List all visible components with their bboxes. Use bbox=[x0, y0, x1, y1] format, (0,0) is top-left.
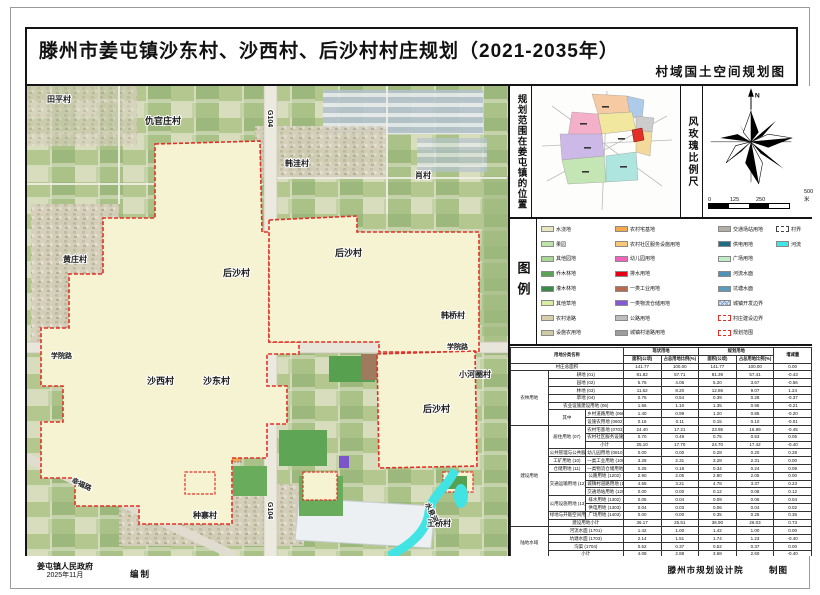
table-cell: 0.00 bbox=[623, 449, 661, 457]
legend-swatch bbox=[541, 271, 554, 277]
legend-swatch bbox=[541, 330, 554, 336]
table-cell: 0.11 bbox=[661, 418, 699, 426]
legend-label: 广场用地 bbox=[733, 255, 753, 262]
table-cell: 0.00 bbox=[623, 511, 661, 519]
credit-left-role: 编制 bbox=[130, 568, 151, 580]
legend-item: 乔木林地 bbox=[541, 266, 613, 281]
table-cell: 0.28 bbox=[699, 449, 737, 457]
table-cell: 0.04 bbox=[774, 496, 812, 504]
legend-label: 村界 bbox=[791, 226, 801, 233]
table-cell: 1.51 bbox=[661, 535, 699, 543]
map-label: 韩洼村 bbox=[285, 158, 309, 168]
table-cell: 公用设施用地 (13) bbox=[548, 496, 586, 512]
legend-item: 公路用地 bbox=[615, 311, 716, 326]
table-cell: 24.70 bbox=[699, 441, 737, 449]
table-cell: 3.21 bbox=[661, 480, 699, 488]
table-cell: 0.00 bbox=[661, 488, 699, 496]
table-cell: 农业设施建设用地 (06) bbox=[548, 402, 623, 410]
legend-item: 其他草地 bbox=[541, 296, 613, 311]
table-cell: 0.54 bbox=[661, 394, 699, 402]
legend-swatch bbox=[615, 226, 628, 232]
legend-grid: 水浇地果园其他园地乔木林地灌木林地其他草地农村道路设施农用地农村宅基地农村社区服… bbox=[537, 219, 812, 344]
table-cell: -0.20 bbox=[774, 410, 812, 418]
table-cell: 0.00 bbox=[661, 449, 699, 457]
map-label: 后沙村 bbox=[223, 267, 250, 278]
legend-swatch bbox=[615, 300, 628, 306]
credit-left-org: 姜屯镇人民政府 bbox=[37, 562, 93, 572]
legend-label: 河流 bbox=[791, 241, 801, 248]
table-cell: 0.09 bbox=[699, 496, 737, 504]
legend-label: 农村宅基地 bbox=[630, 226, 655, 233]
table-cell: 0.37 bbox=[661, 542, 699, 550]
table-cell: 0.04 bbox=[661, 496, 699, 504]
table-cell: 0.02 bbox=[774, 503, 812, 511]
table-cell: 0.06 bbox=[699, 503, 737, 511]
table-cell: 4.08 bbox=[623, 550, 661, 556]
legend-swatch bbox=[541, 300, 554, 306]
legend-swatch bbox=[541, 286, 554, 292]
table-cell: 0.75 bbox=[699, 433, 737, 441]
legend-item: 村界 bbox=[776, 222, 810, 237]
location-strip: 规划范围在姜屯镇的位置 bbox=[510, 86, 812, 219]
table-cell: 1.35 bbox=[699, 402, 737, 410]
table-cell: 幼儿园用地 (0810) bbox=[586, 449, 624, 457]
table-cell: 0.06 bbox=[736, 496, 774, 504]
table-cell: 0.53 bbox=[736, 433, 774, 441]
credit-right-role: 制图 bbox=[769, 565, 788, 575]
table-cell: 0.05 bbox=[623, 496, 661, 504]
table-header-cell: 增减量 bbox=[774, 348, 812, 364]
table-cell: -0.37 bbox=[774, 394, 812, 402]
table-cell: 1.56 bbox=[623, 402, 661, 410]
table-header-cell: 占总用地比例(%) bbox=[661, 355, 699, 363]
legend-label: 规划范围 bbox=[733, 329, 753, 336]
legend-item: 坑塘水面 bbox=[718, 281, 774, 296]
legend-swatch bbox=[718, 256, 731, 262]
right-panel: 规划范围在姜屯镇的位置 bbox=[508, 86, 812, 556]
town-location-svg bbox=[532, 86, 680, 215]
table-cell: 绿地与开敞空间用地 (14) bbox=[548, 511, 586, 519]
legend-item: 一类物流仓储用地 bbox=[615, 296, 716, 311]
map-label: 仇官庄村 bbox=[145, 115, 181, 126]
legend-swatch bbox=[615, 271, 628, 277]
legend-item: 其他园地 bbox=[541, 252, 613, 267]
table-cell: 草地 (04) bbox=[548, 394, 623, 402]
table-cell: 0.95 bbox=[736, 402, 774, 410]
table-cell: 0.35 bbox=[699, 511, 737, 519]
table-cell: 0.15 bbox=[699, 418, 737, 426]
legend-item: 灌木林地 bbox=[541, 281, 613, 296]
table-cell: 0.08 bbox=[736, 488, 774, 496]
legend-label: 排水用地 bbox=[630, 270, 650, 277]
table-cell: 城镇村道路用地 (1207) bbox=[586, 480, 624, 488]
credit-left-date: 2025年11月 bbox=[37, 572, 93, 581]
table-cell: 仓储用地 (11) bbox=[548, 464, 586, 472]
map-label: 沙西村 bbox=[147, 375, 174, 386]
legend-label: 一类工业用地 bbox=[630, 285, 660, 292]
table-cell: 0.00 bbox=[661, 511, 699, 519]
legend-swatch bbox=[718, 286, 731, 292]
table-cell: 0.70 bbox=[623, 433, 661, 441]
table-header-cell: 占总用地比例(%) bbox=[736, 355, 774, 363]
legend-swatch bbox=[718, 330, 731, 336]
legend-label: 河流水面 bbox=[733, 270, 753, 277]
map-label: 小河圈村 bbox=[458, 369, 491, 379]
windrose-cell: N bbox=[703, 86, 812, 217]
landuse-table-head: 用地分类名称现状用地规划用地增减量面积(公顷)占总用地比例(%)面积(公顷)占总… bbox=[511, 348, 812, 364]
table-cell: -0.40 bbox=[774, 535, 812, 543]
table-cell: 0.00 bbox=[774, 472, 812, 480]
table-cell: 1.23 bbox=[736, 535, 774, 543]
table-cell: 0.18 bbox=[661, 464, 699, 472]
legend-label: 城镇开发边界 bbox=[733, 300, 763, 307]
wind-rose: N bbox=[703, 86, 799, 190]
table-cell: 4.78 bbox=[699, 480, 737, 488]
table-cell: 12.86 bbox=[699, 386, 737, 394]
map-label: G104 bbox=[266, 502, 273, 519]
table-cell: 0.05 bbox=[774, 433, 812, 441]
table-cell: 25.51 bbox=[661, 519, 699, 527]
table-cell: 0.09 bbox=[774, 464, 812, 472]
table-cell: 工矿用地 (10) bbox=[548, 457, 586, 465]
table-cell: 25.10 bbox=[623, 441, 661, 449]
table-cell: 1.40 bbox=[623, 410, 661, 418]
table-cell: 0.28 bbox=[736, 394, 774, 402]
table-cell: 0.25 bbox=[623, 464, 661, 472]
legend-item: 果园 bbox=[541, 237, 613, 252]
map-label: 后沙村 bbox=[423, 403, 450, 414]
table-cell: 3.67 bbox=[736, 379, 774, 387]
table-cell: 排水用地 (1302) bbox=[586, 496, 624, 504]
table-cell: 2.60 bbox=[736, 550, 774, 556]
legend-swatch bbox=[718, 226, 731, 232]
table-cell: 0.04 bbox=[736, 503, 774, 511]
table-cell: 河流水面 (1701) bbox=[548, 527, 623, 535]
map-label: 黄庄村 bbox=[63, 254, 87, 264]
table-cell: 0.12 bbox=[699, 488, 737, 496]
table-cell: 建设用地 bbox=[511, 425, 549, 526]
table-cell: 居住用地 (07) bbox=[548, 425, 586, 448]
table-cell: 1.20 bbox=[699, 410, 737, 418]
table-cell: 0.00 bbox=[774, 527, 812, 535]
legend-swatch bbox=[615, 286, 628, 292]
credit-right: 滕州市规划设计院 制图 bbox=[668, 564, 788, 576]
table-cell: -0.43 bbox=[774, 371, 812, 379]
table-cell: 2.90 bbox=[699, 472, 737, 480]
legend-item: 农村道路 bbox=[541, 311, 613, 326]
table-cell: 林地 (03) bbox=[548, 386, 623, 394]
legend-swatch bbox=[718, 300, 731, 306]
table-cell: 81.39 bbox=[699, 371, 737, 379]
village-plan-map: 田平村仇官庄村韩洼村肖村黄庄村后沙村后沙村后沙村沙西村沙东村小河圈村韩桥村学院路… bbox=[27, 86, 508, 556]
map-frame: 滕州市姜屯镇沙东村、沙西村、后沙村村庄规划（2021-2035年） 村域国土空间… bbox=[25, 27, 798, 556]
table-cell: -0.01 bbox=[774, 418, 812, 426]
table-cell: 农村社区服务设施用地 (0704) bbox=[586, 433, 624, 441]
legend-item: 河流 bbox=[776, 237, 810, 252]
table-cell: 建设用地小计 bbox=[548, 519, 623, 527]
table-cell: 17.70 bbox=[661, 441, 699, 449]
table-cell: 2.88 bbox=[661, 550, 699, 556]
legend-item: 村庄建设边界 bbox=[718, 311, 774, 326]
map-label: 肖村 bbox=[415, 170, 431, 180]
legend-label: 农村道路 bbox=[556, 315, 576, 322]
legend-label: 乔木林地 bbox=[556, 270, 576, 277]
legend-item: 一类工业用地 bbox=[615, 281, 716, 296]
plan-sheet: 滕州市姜屯镇沙东村、沙西村、后沙村村庄规划（2021-2035年） 村域国土空间… bbox=[0, 0, 820, 595]
legend-item: 供电用地 bbox=[718, 237, 774, 252]
table-cell: 一类工业用地 (1001) bbox=[586, 457, 624, 465]
legend-item: 城镇开发边界 bbox=[718, 296, 774, 311]
table-cell: 0.00 bbox=[774, 363, 812, 371]
table-cell: 36.90 bbox=[699, 519, 737, 527]
table-cell: 0.10 bbox=[736, 418, 774, 426]
table-cell: 一类物流仓储用地 (1101) bbox=[586, 464, 624, 472]
table-cell: 141.77 bbox=[699, 363, 737, 371]
table-cell: -0.21 bbox=[774, 402, 812, 410]
legend-label: 一类物流仓储用地 bbox=[630, 300, 670, 307]
legend-swatch bbox=[615, 330, 628, 336]
map-label: 沙东村 bbox=[203, 375, 230, 386]
table-cell: 0.00 bbox=[774, 457, 812, 465]
table-cell: 0.85 bbox=[736, 410, 774, 418]
legend-swatch bbox=[615, 241, 628, 247]
content-area: 田平村仇官庄村韩洼村肖村黄庄村后沙村后沙村后沙村沙西村沙东村小河圈村韩桥村学院路… bbox=[27, 86, 796, 556]
table-cell: 0.20 bbox=[736, 449, 774, 457]
legend-swatch bbox=[718, 271, 731, 277]
legend-swatch bbox=[776, 226, 789, 232]
legend-caption: 图例 bbox=[510, 219, 537, 344]
table-cell: 设施农用地 (0602) bbox=[586, 418, 624, 426]
legend-label: 水浇地 bbox=[556, 226, 571, 233]
legend-item: 河流水面 bbox=[718, 266, 774, 281]
table-cell: 2.05 bbox=[661, 472, 699, 480]
table-cell: 广场用地 (1403) bbox=[586, 511, 624, 519]
table-cell: -0.40 bbox=[774, 550, 812, 556]
table-cell: 16.89 bbox=[736, 425, 774, 433]
table-cell: 园地 (02) bbox=[548, 379, 623, 387]
scale-label-500: 500米 bbox=[804, 189, 813, 203]
legend-item: 规划范围 bbox=[718, 326, 774, 341]
scale-bar-segments bbox=[708, 203, 790, 209]
table-cell: 3.28 bbox=[623, 457, 661, 465]
table-cell: 17.42 bbox=[736, 441, 774, 449]
table-cell: 0.37 bbox=[736, 542, 774, 550]
table-cell: 1.42 bbox=[699, 527, 737, 535]
legend-swatch bbox=[718, 241, 731, 247]
legend-swatch bbox=[718, 315, 731, 321]
table-cell: 0.12 bbox=[774, 488, 812, 496]
table-cell: 36.17 bbox=[623, 519, 661, 527]
main-map: 田平村仇官庄村韩洼村肖村黄庄村后沙村后沙村后沙村沙西村沙东村小河圈村韩桥村学院路… bbox=[27, 86, 508, 556]
legend-section: 图例 水浇地果园其他园地乔木林地灌木林地其他草地农村道路设施农用地农村宅基地农村… bbox=[510, 219, 812, 346]
table-cell: 陆地水域 bbox=[511, 527, 549, 556]
table-cell: 2.05 bbox=[736, 472, 774, 480]
scale-bar: 0 125 250 500米 bbox=[708, 189, 794, 211]
table-cell: 0.23 bbox=[774, 480, 812, 488]
table-cell: 农林用地 bbox=[511, 371, 549, 426]
table-cell: 0.49 bbox=[661, 433, 699, 441]
table-cell: 5.76 bbox=[623, 379, 661, 387]
table-cell: 0.76 bbox=[623, 394, 661, 402]
table-cell: 1.00 bbox=[736, 527, 774, 535]
legend-label: 坑塘水面 bbox=[733, 285, 753, 292]
map-label: 种寨村 bbox=[192, 510, 217, 520]
page-subtitle: 村域国土空间规划图 bbox=[655, 61, 786, 80]
legend-label: 交通场站用地 bbox=[733, 226, 763, 233]
legend-label: 村庄建设边界 bbox=[733, 315, 763, 322]
legend-item: 广场用地 bbox=[718, 252, 774, 267]
north-label-glyph: N bbox=[755, 93, 760, 100]
landuse-table-body: 村庄总面积141.77100.00141.77100.000.00农林用地耕地 … bbox=[511, 363, 812, 556]
table-header-cell: 现状用地 bbox=[623, 348, 698, 356]
table-cell: 2.31 bbox=[736, 457, 774, 465]
table-cell: 乡村道路用地 (0601) bbox=[586, 410, 624, 418]
landuse-table: 用地分类名称现状用地规划用地增减量面积(公顷)占总用地比例(%)面积(公顷)占总… bbox=[510, 347, 812, 556]
map-label: 学院路 bbox=[447, 342, 469, 351]
table-cell: 100.00 bbox=[661, 363, 699, 371]
windrose-caption: 风玫瑰比例尺 bbox=[680, 86, 703, 217]
table-cell: 3.68 bbox=[699, 550, 737, 556]
legend-swatch bbox=[541, 256, 554, 262]
table-cell: -0.56 bbox=[774, 379, 812, 387]
legend-item: 城镇村道路用地 bbox=[615, 326, 716, 341]
table-cell: 26.03 bbox=[736, 519, 774, 527]
table-cell: 0.73 bbox=[774, 519, 812, 527]
table-cell: 0.00 bbox=[623, 488, 661, 496]
table-cell: 交通运输用地 (12) bbox=[548, 472, 586, 495]
table-cell: 0.03 bbox=[661, 503, 699, 511]
table-section: 用地分类名称现状用地规划用地增减量面积(公顷)占总用地比例(%)面积(公顷)占总… bbox=[510, 346, 812, 556]
legend-label: 农村社区服务设施用地 bbox=[630, 241, 680, 248]
table-header-cell: 规划用地 bbox=[699, 348, 774, 356]
table-cell: -0.45 bbox=[774, 425, 812, 433]
table-cell: 耕地 (01) bbox=[548, 371, 623, 379]
table-cell: 0.52 bbox=[699, 542, 737, 550]
page-title: 滕州市姜屯镇沙东村、沙西村、后沙村村庄规划（2021-2035年） bbox=[39, 36, 619, 63]
table-cell: 1.10 bbox=[661, 402, 699, 410]
table-cell: 0.25 bbox=[736, 511, 774, 519]
table-cell: 11.62 bbox=[623, 386, 661, 394]
legend-item: 水浇地 bbox=[541, 222, 613, 237]
legend-label: 公路用地 bbox=[630, 315, 650, 322]
legend-swatch bbox=[541, 315, 554, 321]
legend-label: 果园 bbox=[556, 241, 566, 248]
title-block: 滕州市姜屯镇沙东村、沙西村、后沙村村庄规划（2021-2035年） 村域国土空间… bbox=[27, 29, 796, 86]
table-cell: 0.28 bbox=[774, 449, 812, 457]
legend-label: 供电用地 bbox=[733, 241, 753, 248]
table-cell: 2.14 bbox=[623, 535, 661, 543]
table-header-cell: 用地分类名称 bbox=[511, 348, 624, 364]
table-cell: 100.00 bbox=[736, 363, 774, 371]
table-cell: 57.71 bbox=[661, 371, 699, 379]
legend-label: 其他草地 bbox=[556, 300, 576, 307]
credit-right-org: 滕州市规划设计院 bbox=[668, 565, 744, 575]
legend-item: 农村社区服务设施用地 bbox=[615, 237, 716, 252]
map-label: 后沙村 bbox=[335, 247, 362, 258]
table-cell: 小计 bbox=[586, 441, 624, 449]
legend-item: 幼儿园用地 bbox=[615, 252, 716, 267]
legend-label: 灌木林地 bbox=[556, 285, 576, 292]
location-caption: 规划范围在姜屯镇的位置 bbox=[510, 86, 532, 217]
legend-swatch bbox=[615, 315, 628, 321]
credit-left: 姜屯镇人民政府 2025年11月 bbox=[37, 562, 93, 581]
legend-swatch bbox=[776, 241, 789, 247]
table-cell: 1.00 bbox=[661, 527, 699, 535]
table-header-cell: 面积(公顷) bbox=[699, 355, 737, 363]
table-cell: 农村宅基地 (0703) bbox=[586, 425, 624, 433]
table-cell: 村庄总面积 bbox=[511, 363, 624, 371]
table-cell: 8.20 bbox=[661, 386, 699, 394]
table-cell: 4.06 bbox=[661, 379, 699, 387]
table-cell: 2.31 bbox=[661, 457, 699, 465]
table-cell: 23.95 bbox=[699, 425, 737, 433]
legend-label: 城镇村道路用地 bbox=[630, 329, 665, 336]
map-label: 韩桥村 bbox=[441, 310, 465, 320]
table-cell: 0.00 bbox=[774, 542, 812, 550]
table-cell: 24.40 bbox=[623, 425, 661, 433]
table-cell: 1.74 bbox=[699, 535, 737, 543]
map-label: 学院路 bbox=[51, 351, 73, 360]
table-cell: 4.55 bbox=[623, 480, 661, 488]
table-cell: 5.20 bbox=[699, 379, 737, 387]
table-cell: 坑塘水面 (1703) bbox=[548, 535, 623, 543]
legend-item: 农村宅基地 bbox=[615, 222, 716, 237]
legend-item: 设施农用地 bbox=[541, 326, 613, 341]
table-header-cell: 面积(公顷) bbox=[623, 355, 661, 363]
table-cell: 0.24 bbox=[736, 464, 774, 472]
table-cell: -0.40 bbox=[774, 441, 812, 449]
table-cell: 57.41 bbox=[736, 371, 774, 379]
table-cell: 0.04 bbox=[623, 503, 661, 511]
legend-item: 交通场站用地 bbox=[718, 222, 774, 237]
table-cell: 交通场站用地 (1208) bbox=[586, 488, 624, 496]
table-cell: 公共管理与公共服务用地 (08) bbox=[548, 449, 586, 457]
table-cell: 0.34 bbox=[699, 464, 737, 472]
table-cell: 1.24 bbox=[774, 386, 812, 394]
town-location-map bbox=[532, 86, 680, 217]
table-cell: 0.35 bbox=[774, 511, 812, 519]
table-cell: 供电用地 (1303) bbox=[586, 503, 624, 511]
table-cell: 其中 bbox=[548, 410, 586, 426]
map-label: 田平村 bbox=[47, 94, 71, 104]
legend-swatch bbox=[541, 241, 554, 247]
legend-swatch bbox=[615, 256, 628, 262]
table-cell: 81.82 bbox=[623, 371, 661, 379]
table-cell: 3.28 bbox=[699, 457, 737, 465]
table-cell: 9.07 bbox=[736, 386, 774, 394]
table-cell: 17.21 bbox=[661, 425, 699, 433]
table-cell: 0.16 bbox=[623, 418, 661, 426]
table-cell: 0.52 bbox=[623, 542, 661, 550]
legend-item: 排水用地 bbox=[615, 266, 716, 281]
legend-label: 幼儿园用地 bbox=[630, 255, 655, 262]
legend-label: 设施农用地 bbox=[556, 329, 581, 336]
legend-label: 其他园地 bbox=[556, 255, 576, 262]
table-cell: 0.99 bbox=[661, 410, 699, 418]
map-label: G104 bbox=[266, 110, 273, 127]
table-cell: 141.77 bbox=[623, 363, 661, 371]
credits-strip: 姜屯镇人民政府 2025年11月 编制 滕州市规划设计院 制图 bbox=[25, 560, 798, 590]
table-cell: 0.39 bbox=[699, 394, 737, 402]
legend-swatch bbox=[541, 226, 554, 232]
table-cell: 3.37 bbox=[736, 480, 774, 488]
table-cell: 2.90 bbox=[623, 472, 661, 480]
table-cell: 小计 bbox=[548, 550, 623, 556]
table-cell: 1.42 bbox=[623, 527, 661, 535]
table-cell: 公路用地 (1202) bbox=[586, 472, 624, 480]
table-cell: 沟渠 (1704) bbox=[548, 542, 623, 550]
